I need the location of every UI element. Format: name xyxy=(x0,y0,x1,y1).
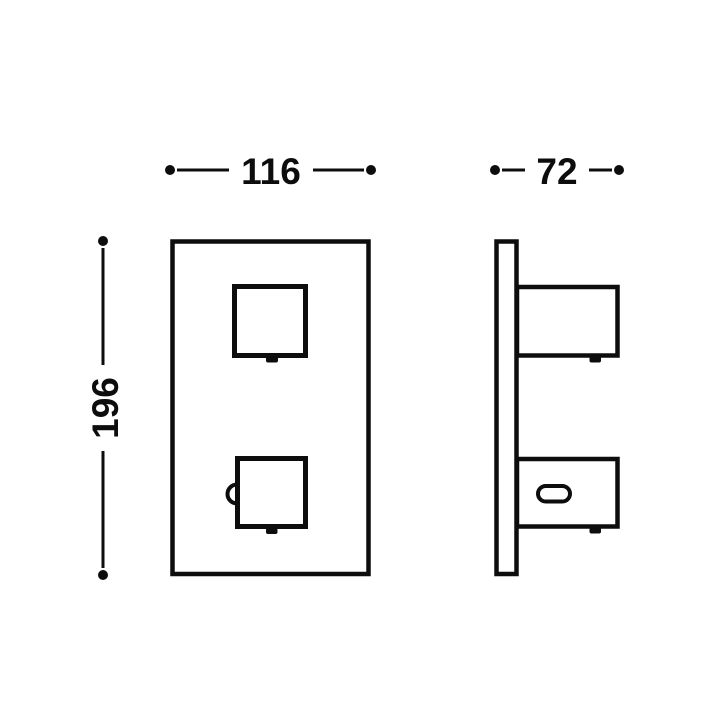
dimension-label-front-width: 116 xyxy=(241,151,301,192)
side-top-handle xyxy=(517,287,618,356)
front-bottom-handle-indicator-notch xyxy=(266,528,278,534)
dimension-endpoint-dot xyxy=(98,570,108,580)
front-view xyxy=(173,242,369,575)
front-top-handle xyxy=(235,287,306,356)
dimension-front-width: 116 xyxy=(165,151,376,192)
dimension-label-front-height: 196 xyxy=(85,377,126,439)
dimension-endpoint-dot xyxy=(490,165,500,175)
front-bottom-handle xyxy=(238,459,306,527)
dimension-endpoint-dot xyxy=(165,165,175,175)
dimension-endpoint-dot xyxy=(98,236,108,246)
thermostatic-valve-dimension-drawing: 116 72 196 xyxy=(0,0,720,720)
side-bottom-handle xyxy=(517,459,618,527)
dimension-endpoint-dot xyxy=(366,165,376,175)
dimension-label-side-depth: 72 xyxy=(536,151,577,192)
side-top-handle-indicator-notch xyxy=(590,356,602,363)
side-view xyxy=(497,242,618,575)
dimension-side-depth: 72 xyxy=(490,151,624,192)
dimension-front-height: 196 xyxy=(85,236,126,580)
front-top-handle-indicator-notch xyxy=(266,356,278,363)
side-bottom-handle-indicator-notch xyxy=(590,528,602,534)
technical-drawing-page: 116 72 196 xyxy=(0,0,720,720)
side-plate-outline xyxy=(497,242,517,575)
dimension-endpoint-dot xyxy=(614,165,624,175)
